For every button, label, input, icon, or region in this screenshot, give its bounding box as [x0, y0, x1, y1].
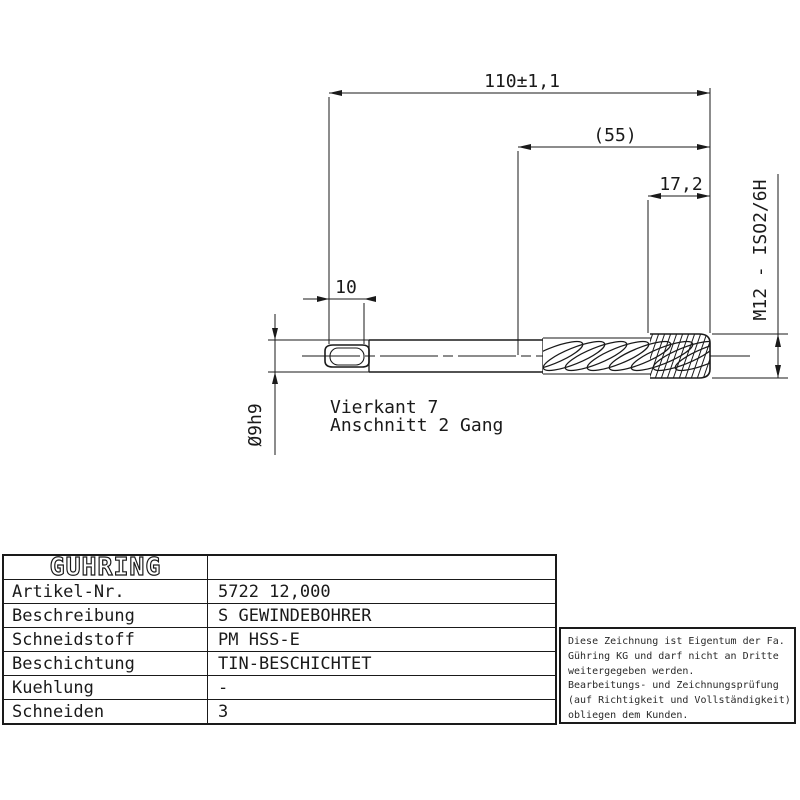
row-label-beschreibung: Beschreibung [4, 604, 208, 627]
row-value-schneidstoff: PM HSS-E [208, 628, 555, 651]
table-row: Beschichtung TIN-BESCHICHTET [4, 651, 555, 675]
table-row: Artikel-Nr. 5722 12,000 [4, 579, 555, 603]
note-chamfer-lead: Anschnitt 2 Gang [330, 415, 503, 436]
notice-line: (auf Richtigkeit und Vollständigkeit) [568, 694, 794, 709]
dim-chamfer-length: 17,2 [648, 174, 710, 333]
dim-overall-length-label: 110±1,1 [484, 71, 560, 92]
dim-chamfer-length-label: 17,2 [659, 174, 702, 195]
dim-square-length-label: 10 [335, 277, 357, 298]
row-label-kuehlung: Kuehlung [4, 676, 208, 699]
table-row: Schneiden 3 [4, 699, 555, 723]
logo-cell: GÜHRING [4, 556, 208, 579]
guehring-logo: GÜHRING [4, 556, 207, 579]
row-label-beschichtung: Beschichtung [4, 652, 208, 675]
dim-thread-spec-label: M12 - ISO2/6H [750, 180, 771, 321]
notice-line: Diese Zeichnung ist Eigentum der Fa. [568, 635, 794, 650]
table-row: Kuehlung - [4, 675, 555, 699]
dim-shank-diameter-label: Ø9h9 [245, 403, 266, 446]
notice-line: obliegen dem Kunden. [568, 709, 794, 724]
notice-line: weitergegeben werden. [568, 665, 794, 680]
table-row-logo: GÜHRING [4, 556, 555, 579]
table-row: Schneidstoff PM HSS-E [4, 627, 555, 651]
square-end-inner [330, 348, 364, 365]
ownership-notice-box: Diese Zeichnung ist Eigentum der Fa. Güh… [559, 627, 796, 724]
dim-overall-length: 110±1,1 [329, 71, 710, 344]
notice-line: Gühring KG und darf nicht an Dritte [568, 650, 794, 665]
row-value-artikel-nr: 5722 12,000 [208, 580, 555, 603]
dim-flute-length: (55) [518, 125, 710, 355]
row-label-artikel-nr: Artikel-Nr. [4, 580, 208, 603]
dim-square-length: 10 [303, 277, 376, 344]
row-value-beschichtung: TIN-BESCHICHTET [208, 652, 555, 675]
notice-line: Bearbeitungs- und Zeichnungsprüfung [568, 679, 794, 694]
title-block-table: GÜHRING Artikel-Nr. 5722 12,000 Beschrei… [2, 554, 557, 725]
logo-row-value [208, 556, 555, 579]
table-row: Beschreibung S GEWINDEBOHRER [4, 603, 555, 627]
row-value-schneiden: 3 [208, 700, 555, 723]
row-label-schneiden: Schneiden [4, 700, 208, 723]
dim-flute-length-label: (55) [593, 125, 636, 146]
row-label-schneidstoff: Schneidstoff [4, 628, 208, 651]
row-value-beschreibung: S GEWINDEBOHRER [208, 604, 555, 627]
dim-thread-spec: M12 - ISO2/6H [712, 174, 788, 378]
guehring-logo-text: GÜHRING [50, 556, 162, 579]
row-value-kuehlung: - [208, 676, 555, 699]
tap-technical-drawing: 110±1,1 (55) 17,2 10 Ø9h9 [0, 0, 800, 545]
